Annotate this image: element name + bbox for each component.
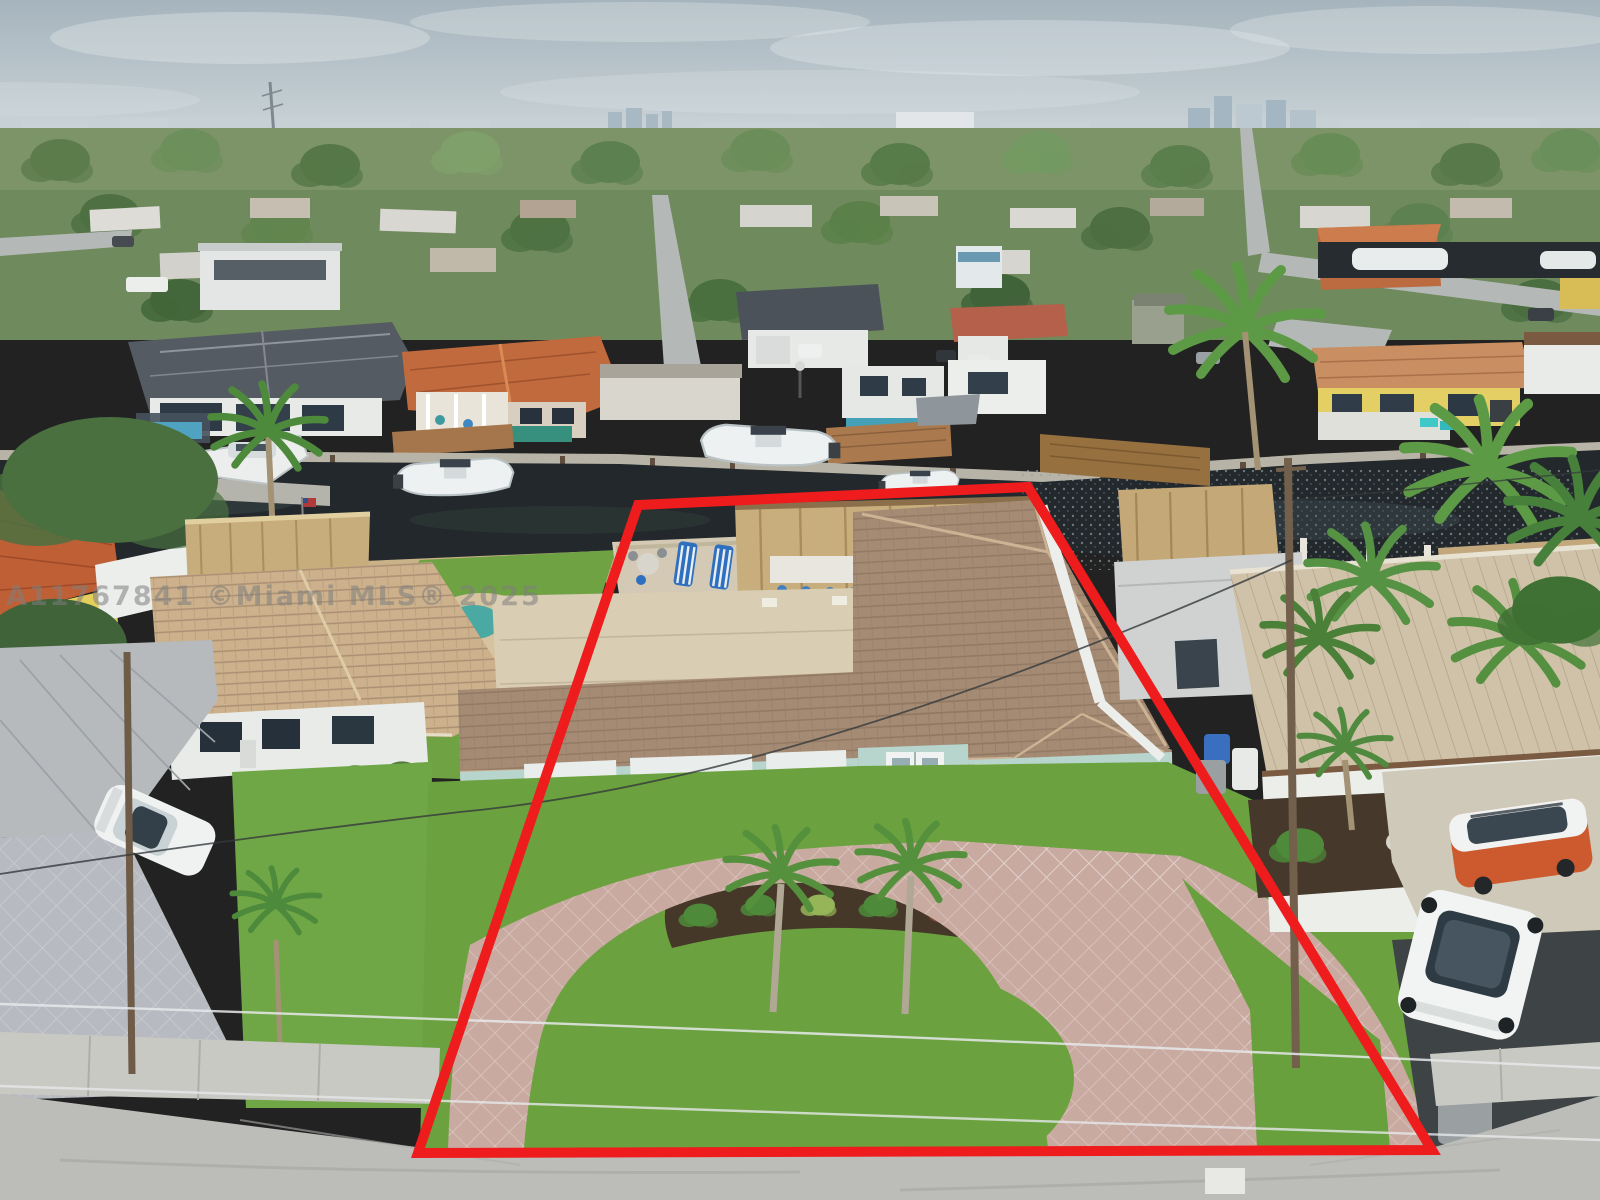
far-right-house: [1524, 332, 1600, 394]
storm-drain: [1205, 1168, 1245, 1194]
moored-boat: [1352, 248, 1448, 270]
white-two-story-house: [198, 243, 342, 310]
rear-canal: [1318, 242, 1600, 278]
yellow-house: [1312, 342, 1534, 440]
mls-watermark: A11767841 ©Miami MLS® 2025: [6, 581, 542, 612]
house-blue-white: [956, 246, 1002, 288]
house-olive: [1132, 294, 1186, 344]
aerial-photo: A11767841 ©Miami MLS® 2025: [0, 0, 1600, 1200]
orange-roof-house: [392, 336, 624, 456]
utility-pole-left: [127, 652, 132, 1074]
moored-boat: [1540, 251, 1596, 269]
boat-on-dock-lift: [701, 425, 840, 466]
